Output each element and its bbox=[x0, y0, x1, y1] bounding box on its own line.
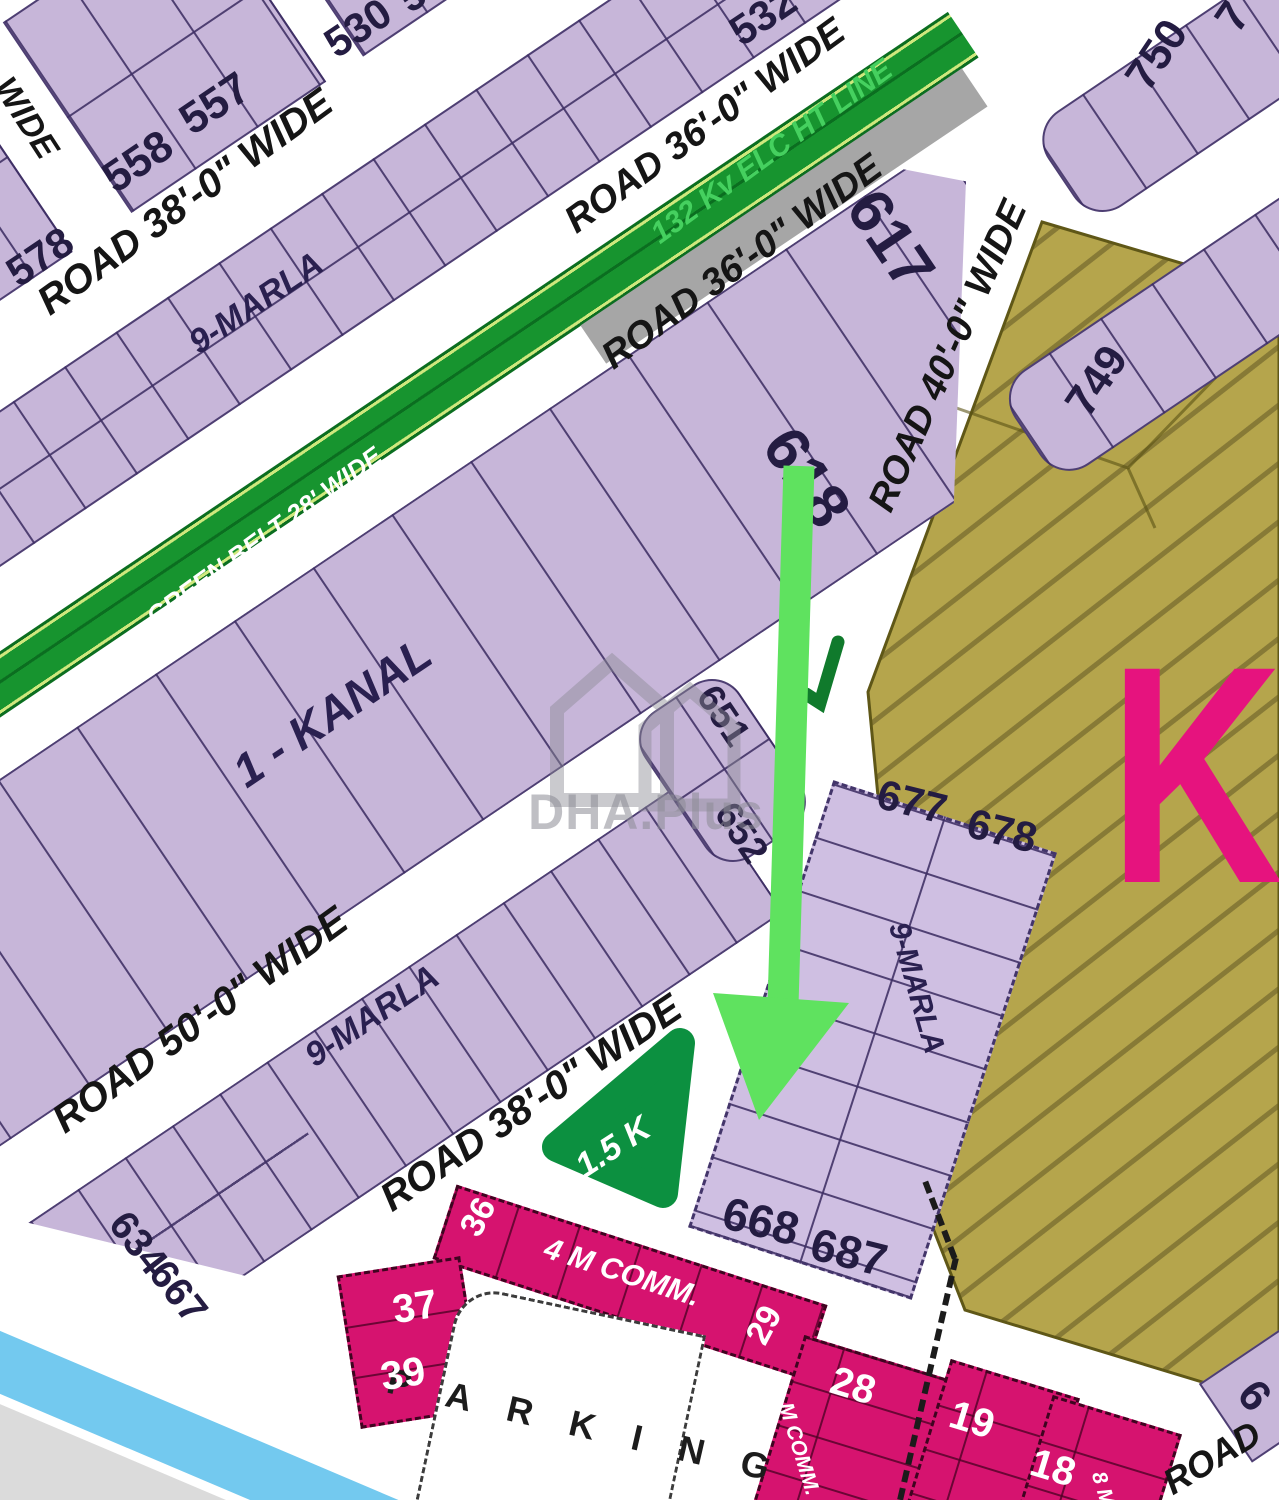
watermark-logo bbox=[557, 662, 734, 805]
small-green-checkmark bbox=[806, 642, 838, 703]
map-overlay bbox=[0, 0, 1279, 1500]
map-image: WIDEROAD 38'-0" WIDEROAD 36'-0" WIDEROAD… bbox=[0, 0, 1279, 1500]
